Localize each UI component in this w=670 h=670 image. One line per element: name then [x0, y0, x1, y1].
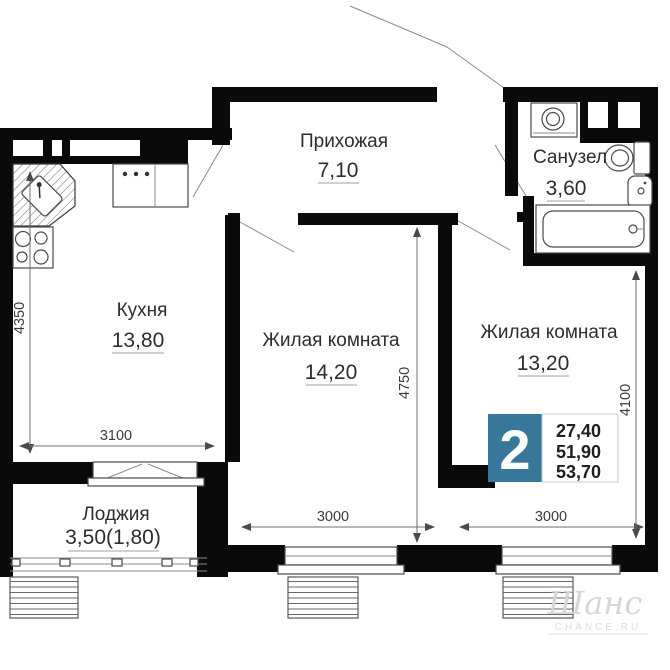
room-name-room2: Жилая комната [480, 322, 618, 343]
vent-shaft [588, 102, 608, 128]
dim-label-room1-height: 4750 [397, 367, 413, 399]
badge-area-2: 51,90 [556, 442, 601, 462]
room-area-room1: 14,20 [305, 361, 358, 384]
room2-window [496, 547, 620, 574]
room1-window [278, 547, 404, 574]
room-area-kitchen: 13,80 [112, 329, 165, 352]
bathtub-icon [536, 205, 650, 253]
room-name-hallway: Прихожая [300, 131, 388, 152]
cooktop-icon [113, 164, 188, 207]
vent-shaft [618, 102, 640, 128]
watermark-logo: Шанс [547, 584, 643, 622]
room-area-room2: 13,20 [517, 352, 570, 375]
badge-area-3: 53,70 [556, 462, 601, 482]
dim-label-room1-window: 3000 [317, 509, 349, 525]
dim-label-room2-height: 4100 [618, 384, 634, 416]
room-name-loggia: Лоджия [82, 504, 149, 525]
kitchen-loggia-window [88, 462, 204, 486]
washing-machine-icon [531, 103, 577, 137]
washbasin-icon [628, 176, 652, 208]
dim-label-kitchen-window: 3100 [100, 428, 132, 444]
room-count: 2 [499, 418, 530, 481]
room-name-bathroom: Санузел [533, 147, 607, 168]
room-area-bathroom: 3,60 [546, 177, 587, 200]
room-name-kitchen: Кухня [117, 300, 168, 321]
room-area-hallway: 7,10 [318, 159, 359, 182]
apartment-info-badge: 2 27,40 51,90 53,70 [488, 414, 618, 482]
floor-plan: 4350 3100 3000 3000 4750 4100 Прихожая 7… [0, 0, 670, 670]
stove-icon [13, 227, 53, 268]
watermark-caption: CHANCE.RU [555, 622, 641, 633]
dim-label-kitchen-height: 4350 [12, 302, 28, 334]
room-area-loggia: 3,50(1,80) [65, 526, 161, 549]
watermark: Шанс CHANCE.RU [547, 584, 648, 634]
dim-label-room2-window: 3000 [535, 509, 567, 525]
badge-area-1: 27,40 [556, 421, 601, 441]
room-name-room1: Жилая комната [262, 330, 400, 351]
